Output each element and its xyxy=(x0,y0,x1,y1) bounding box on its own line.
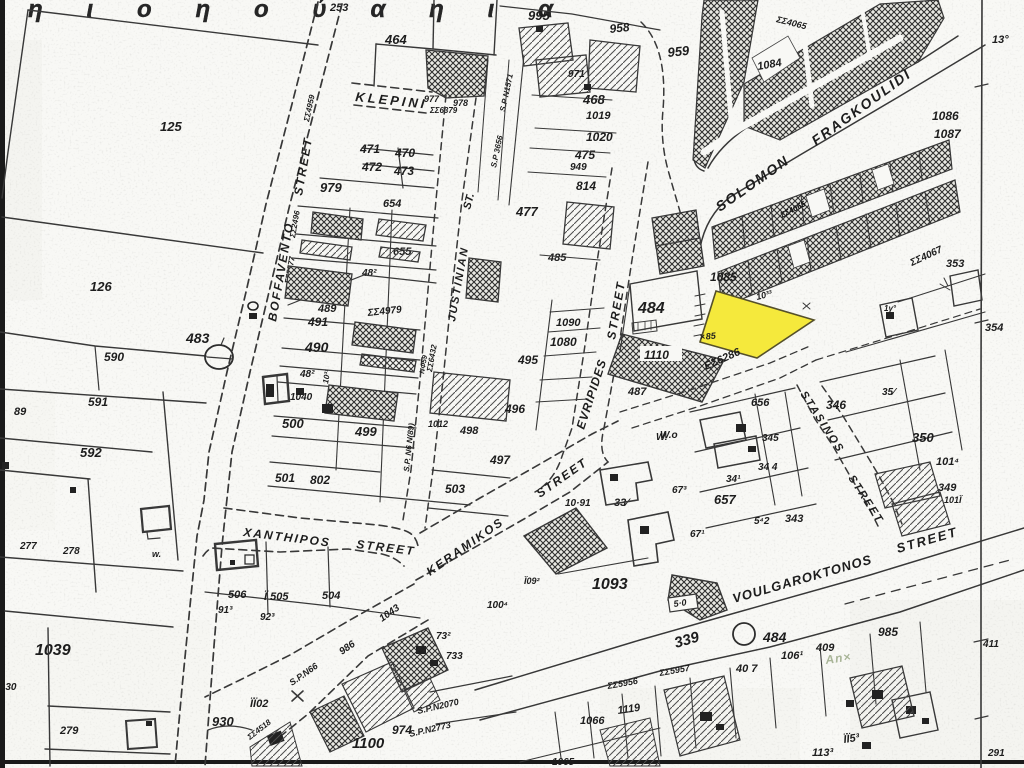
svg-text:487: 487 xyxy=(627,386,647,398)
svg-text:346: 346 xyxy=(826,398,846,412)
svg-text:491: 491 xyxy=(307,315,328,329)
svg-text:48²: 48² xyxy=(299,369,315,380)
svg-text:1019: 1019 xyxy=(586,110,611,122)
svg-text:1087: 1087 xyxy=(934,127,962,141)
svg-text:345: 345 xyxy=(762,433,779,444)
svg-text:67¹: 67¹ xyxy=(690,529,705,540)
svg-text:67³: 67³ xyxy=(672,485,687,496)
svg-text:92³: 92³ xyxy=(260,612,275,623)
svg-text:89: 89 xyxy=(14,406,27,418)
svg-text:343: 343 xyxy=(785,513,803,525)
svg-text:979: 979 xyxy=(320,180,342,195)
svg-text:978: 978 xyxy=(453,98,468,108)
svg-text:484: 484 xyxy=(762,629,787,645)
svg-text:654: 654 xyxy=(383,198,401,210)
svg-text:101⁴: 101⁴ xyxy=(936,456,959,468)
svg-text:Ї 505: Ї 505 xyxy=(264,590,289,603)
svg-text:34¹: 34¹ xyxy=(726,474,741,485)
svg-text:506: 506 xyxy=(228,589,247,601)
svg-text:113³: 113³ xyxy=(812,747,834,759)
svg-text:504: 504 xyxy=(322,590,340,602)
svg-text:471: 471 xyxy=(359,142,380,156)
svg-text:977: 977 xyxy=(424,94,440,104)
svg-text:91³: 91³ xyxy=(218,605,233,616)
svg-text:949: 949 xyxy=(570,162,587,173)
svg-text:657: 657 xyxy=(714,492,736,507)
svg-text:985: 985 xyxy=(878,625,898,639)
svg-text:959: 959 xyxy=(667,43,691,60)
svg-text:591: 591 xyxy=(88,395,108,409)
svg-text:477: 477 xyxy=(515,204,538,219)
svg-text:1039: 1039 xyxy=(35,642,71,659)
svg-text:Ї09²: Ї09² xyxy=(524,576,541,586)
svg-text:126: 126 xyxy=(90,279,112,294)
svg-text:814: 814 xyxy=(576,179,596,193)
svg-text:125: 125 xyxy=(160,119,182,134)
svg-text:489: 489 xyxy=(317,303,337,315)
svg-text:496: 496 xyxy=(504,402,525,416)
svg-text:500: 500 xyxy=(282,416,304,431)
svg-text:1040: 1040 xyxy=(290,392,313,403)
svg-text:497: 497 xyxy=(489,453,511,467)
svg-text:353: 353 xyxy=(946,258,964,270)
svg-text:34 4: 34 4 xyxy=(758,462,778,473)
svg-text:279: 279 xyxy=(59,725,79,737)
svg-text:495: 495 xyxy=(517,353,538,367)
svg-text:w.: w. xyxy=(152,549,161,559)
svg-text:·30: ·30 xyxy=(2,682,17,693)
svg-text:1086: 1086 xyxy=(932,109,959,123)
svg-text:1110: 1110 xyxy=(644,348,669,362)
svg-text:484: 484 xyxy=(637,300,665,317)
svg-text:277: 277 xyxy=(19,541,37,552)
svg-text:1065: 1065 xyxy=(552,757,575,768)
svg-text:ЇЇ5³: ЇЇ5³ xyxy=(843,731,861,746)
svg-text:464: 464 xyxy=(384,32,407,47)
svg-text:100⁴: 100⁴ xyxy=(487,600,508,611)
svg-text:483: 483 xyxy=(185,330,210,346)
svg-text:350: 350 xyxy=(912,430,934,445)
svg-text:501: 501 xyxy=(275,471,295,485)
svg-text:5⁴2: 5⁴2 xyxy=(754,516,770,527)
svg-text:490: 490 xyxy=(304,339,329,355)
svg-text:503: 503 xyxy=(445,482,465,496)
svg-text:472: 472 xyxy=(361,160,382,174)
svg-text:411: 411 xyxy=(982,639,999,650)
svg-text:× 85: × 85 xyxy=(699,331,717,342)
svg-text:13°: 13° xyxy=(992,34,1009,46)
svg-text:958: 958 xyxy=(609,20,631,36)
svg-text:ЇЇ02: ЇЇ02 xyxy=(250,697,268,710)
svg-text:253: 253 xyxy=(329,2,348,14)
svg-text:1066: 1066 xyxy=(580,715,605,727)
svg-text:349: 349 xyxy=(938,482,957,494)
svg-text:971: 971 xyxy=(568,69,585,80)
svg-text:475: 475 xyxy=(574,148,595,162)
svg-text:48²: 48² xyxy=(361,268,377,279)
svg-text:1093: 1093 xyxy=(592,576,628,593)
svg-text:101Ї: 101Ї xyxy=(944,495,963,505)
svg-text:1090: 1090 xyxy=(556,317,581,329)
svg-text:10·91: 10·91 xyxy=(565,498,591,509)
svg-text:354: 354 xyxy=(985,322,1003,334)
svg-text:485: 485 xyxy=(547,252,567,264)
svg-text:470: 470 xyxy=(394,146,415,160)
svg-text:592: 592 xyxy=(80,445,102,460)
svg-text:1085: 1085 xyxy=(710,270,737,284)
svg-text:40 7: 40 7 xyxy=(735,663,758,675)
svg-text:1080: 1080 xyxy=(550,335,577,349)
svg-text:802: 802 xyxy=(310,473,330,487)
svg-text:499: 499 xyxy=(354,424,377,439)
svg-text:656: 656 xyxy=(751,397,770,409)
svg-text:106¹: 106¹ xyxy=(781,650,803,662)
svg-text:291: 291 xyxy=(987,748,1005,759)
svg-text:473: 473 xyxy=(393,164,414,178)
svg-text:1100: 1100 xyxy=(352,735,385,752)
svg-text:73²: 73² xyxy=(436,631,451,642)
svg-text:1γ°: 1γ° xyxy=(884,304,897,313)
svg-text:5·0: 5·0 xyxy=(673,597,687,609)
svg-text:498: 498 xyxy=(459,425,479,437)
svg-text:590: 590 xyxy=(104,350,124,364)
svg-text:733: 733 xyxy=(446,651,463,662)
svg-text:W.ο: W.ο xyxy=(660,430,678,441)
svg-text:278: 278 xyxy=(62,546,80,557)
